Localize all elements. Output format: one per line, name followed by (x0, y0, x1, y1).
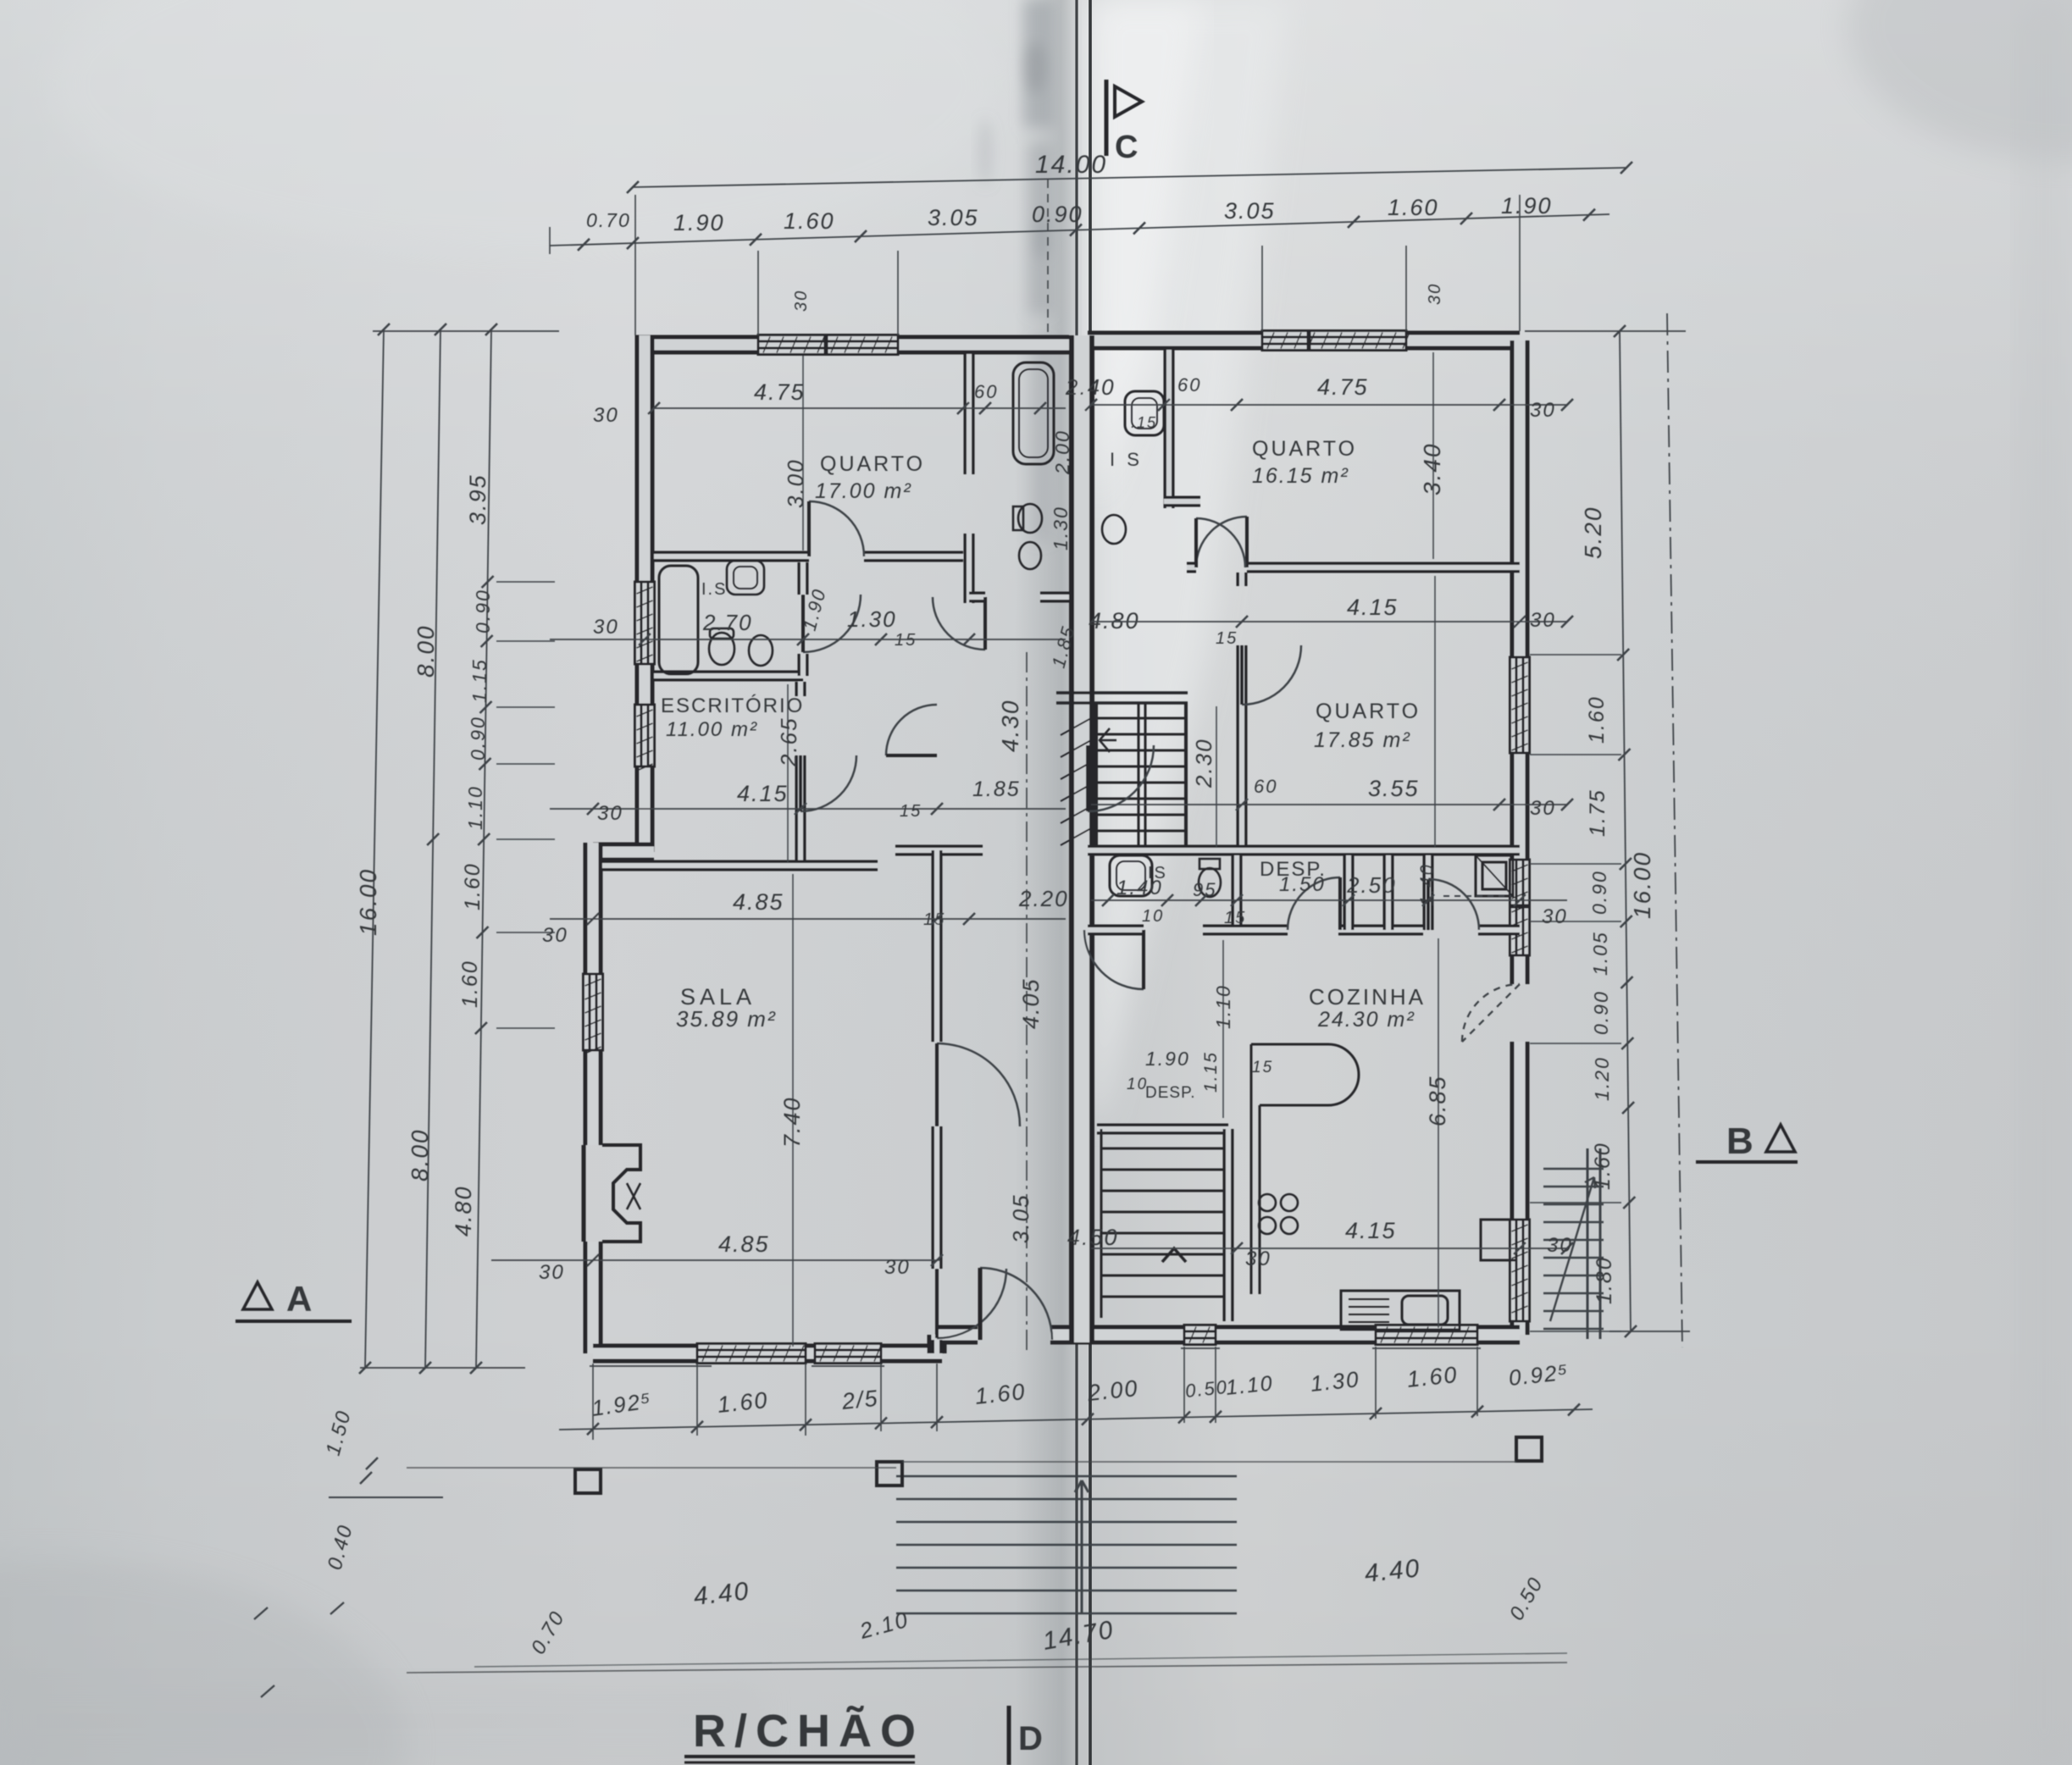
svg-text:4.15: 4.15 (1345, 1218, 1397, 1243)
svg-text:30: 30 (542, 924, 568, 947)
svg-text:1.90: 1.90 (1145, 1048, 1190, 1070)
svg-text:30: 30 (597, 802, 623, 825)
svg-text:1.60: 1.60 (1585, 695, 1609, 744)
svg-text:15: 15 (1224, 909, 1246, 927)
svg-text:1.90: 1.90 (673, 210, 725, 235)
svg-text:QUARTO: QUARTO (1252, 437, 1357, 461)
svg-text:1.40: 1.40 (1116, 877, 1163, 899)
svg-text:1.40: 1.40 (1416, 863, 1438, 906)
svg-text:1.80: 1.80 (1593, 1256, 1616, 1304)
svg-text:16.00: 16.00 (1629, 851, 1655, 919)
svg-text:1.30: 1.30 (1050, 506, 1072, 551)
svg-text:1.60: 1.60 (973, 1379, 1027, 1409)
svg-text:DESP.: DESP. (1145, 1084, 1196, 1102)
svg-text:2.65: 2.65 (776, 717, 801, 767)
svg-text:30: 30 (884, 1256, 911, 1279)
svg-text:1.60: 1.60 (1388, 195, 1439, 220)
svg-text:17.00 m²: 17.00 m² (815, 479, 912, 503)
svg-text:1.15: 1.15 (468, 658, 490, 703)
svg-text:2/5: 2/5 (839, 1386, 879, 1414)
svg-text:24.30 m²: 24.30 m² (1317, 1008, 1415, 1032)
svg-text:1.30: 1.30 (847, 606, 897, 632)
svg-text:30: 30 (1426, 283, 1444, 305)
svg-text:2.00: 2.00 (1085, 1375, 1139, 1406)
svg-text:3.00: 3.00 (783, 458, 808, 508)
svg-text:30: 30 (593, 616, 619, 639)
svg-text:0.90: 0.90 (1588, 870, 1610, 915)
svg-text:D: D (1018, 1720, 1044, 1757)
svg-text:8.00: 8.00 (407, 1129, 433, 1182)
svg-text:4.85: 4.85 (733, 889, 784, 915)
svg-text:95: 95 (1193, 879, 1216, 900)
svg-text:1.60: 1.60 (1591, 1142, 1615, 1190)
svg-text:10: 10 (1127, 1076, 1148, 1093)
svg-text:4.75: 4.75 (754, 379, 806, 405)
svg-text:4.75: 4.75 (1317, 374, 1369, 400)
svg-text:30: 30 (1542, 905, 1568, 928)
svg-text:1.60: 1.60 (458, 960, 482, 1008)
svg-text:1.85: 1.85 (972, 777, 1021, 801)
svg-text:.15: .15 (1131, 414, 1157, 431)
svg-text:30: 30 (1530, 797, 1556, 820)
svg-text:15: 15 (900, 802, 922, 821)
svg-text:1.60: 1.60 (1405, 1362, 1459, 1392)
svg-text:30: 30 (1530, 609, 1556, 632)
svg-text:COZINHA: COZINHA (1309, 984, 1426, 1010)
svg-text:0.90: 0.90 (1032, 202, 1083, 227)
svg-text:35.89 m²: 35.89 m² (676, 1006, 777, 1032)
svg-text:1.60: 1.60 (784, 208, 835, 234)
svg-text:1.60: 1.60 (461, 862, 485, 910)
svg-text:30: 30 (593, 404, 619, 427)
svg-text:0.50: 0.50 (1184, 1376, 1229, 1402)
svg-text:0.90: 0.90 (472, 589, 494, 634)
svg-text:R/CHÃO: R/CHÃO (693, 1706, 924, 1757)
svg-text:60: 60 (1177, 374, 1201, 396)
svg-text:2.00: 2.00 (1051, 429, 1073, 475)
svg-text:2.70: 2.70 (702, 610, 753, 635)
svg-text:2.40: 2.40 (1065, 374, 1116, 400)
svg-text:6.85: 6.85 (1425, 1075, 1450, 1126)
svg-text:C: C (1115, 130, 1139, 165)
svg-text:30: 30 (1547, 1234, 1573, 1257)
svg-text:1.15: 1.15 (1201, 1051, 1221, 1093)
svg-text:4.40: 4.40 (1363, 1554, 1421, 1588)
svg-text:3.05: 3.05 (1008, 1193, 1033, 1243)
svg-text:30: 30 (1245, 1248, 1271, 1270)
svg-text:1.05: 1.05 (1589, 931, 1611, 976)
svg-text:0.90: 0.90 (1590, 990, 1612, 1035)
svg-text:4.80: 4.80 (1089, 608, 1140, 634)
svg-text:1.50: 1.50 (1279, 873, 1326, 896)
svg-text:A: A (286, 1279, 313, 1319)
svg-text:2.20: 2.20 (1018, 886, 1069, 911)
svg-text:1.20: 1.20 (1591, 1056, 1613, 1101)
svg-text:2.50: 2.50 (1346, 872, 1397, 898)
svg-text:8.00: 8.00 (413, 625, 439, 678)
svg-text:4.40: 4.40 (692, 1577, 751, 1611)
svg-text:1.90: 1.90 (1501, 193, 1553, 219)
svg-text:16.00: 16.00 (355, 868, 381, 936)
svg-text:0.70: 0.70 (586, 209, 631, 231)
svg-text:15: 15 (923, 910, 945, 929)
svg-text:15: 15 (1216, 629, 1238, 648)
svg-text:3.05: 3.05 (928, 205, 979, 230)
svg-text:QUARTO: QUARTO (1316, 700, 1421, 723)
svg-text:3.95: 3.95 (465, 473, 490, 525)
svg-text:0.90: 0.90 (467, 716, 489, 761)
svg-text:15: 15 (895, 631, 917, 650)
svg-text:11.00 m²: 11.00 m² (666, 718, 758, 741)
svg-text:3.55: 3.55 (1368, 776, 1420, 801)
svg-text:2.30: 2.30 (1191, 738, 1216, 788)
svg-text:16.15 m²: 16.15 m² (1252, 464, 1349, 488)
svg-text:1.10: 1.10 (1225, 1371, 1275, 1400)
svg-text:B: B (1726, 1120, 1755, 1162)
svg-text:4.15: 4.15 (1347, 595, 1399, 620)
svg-text:60: 60 (974, 381, 998, 402)
svg-text:1.30: 1.30 (1309, 1366, 1360, 1397)
svg-text:17.85 m²: 17.85 m² (1314, 728, 1411, 752)
svg-text:3.05: 3.05 (1224, 198, 1276, 224)
svg-text:10: 10 (1142, 907, 1164, 926)
svg-text:ESCRITÓRIO: ESCRITÓRIO (661, 694, 804, 717)
svg-text:I.S: I.S (701, 580, 727, 599)
svg-text:5.20: 5.20 (1580, 506, 1606, 560)
svg-text:1.75: 1.75 (1586, 788, 1609, 837)
svg-text:4.05: 4.05 (1018, 977, 1044, 1029)
svg-text:30: 30 (1530, 399, 1556, 422)
svg-text:4.50: 4.50 (1067, 1225, 1119, 1250)
svg-text:30: 30 (792, 290, 811, 312)
svg-text:14.00: 14.00 (1035, 151, 1107, 179)
svg-text:3.40: 3.40 (1419, 443, 1445, 496)
svg-text:QUARTO: QUARTO (820, 452, 925, 476)
svg-text:I S: I S (1110, 449, 1143, 470)
svg-text:1.10: 1.10 (464, 785, 486, 830)
svg-text:4.30: 4.30 (997, 700, 1023, 753)
svg-text:7.40: 7.40 (779, 1096, 805, 1148)
svg-text:4.85: 4.85 (718, 1231, 770, 1257)
svg-text:15: 15 (1252, 1059, 1273, 1076)
svg-text:4.80: 4.80 (451, 1185, 476, 1237)
svg-text:4.15: 4.15 (737, 781, 789, 806)
svg-text:1.10: 1.10 (1212, 984, 1234, 1029)
svg-text:60: 60 (1254, 776, 1277, 797)
svg-text:30: 30 (539, 1261, 565, 1284)
svg-text:1.60: 1.60 (716, 1387, 769, 1418)
